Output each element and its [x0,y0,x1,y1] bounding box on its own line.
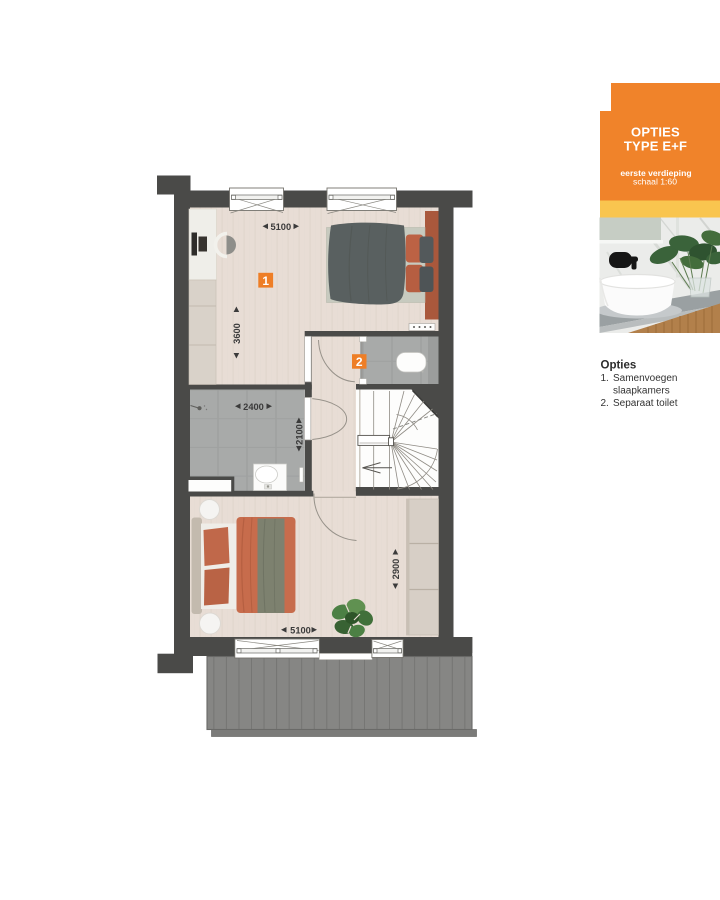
svg-text:Opties: Opties [601,360,637,372]
svg-text:slaapkamers: slaapkamers [613,386,670,397]
svg-text:OPTIES: OPTIES [631,125,680,140]
svg-text:2900: 2900 [391,559,401,580]
svg-text:Samenvoegen: Samenvoegen [613,373,678,384]
svg-text:Separaat toilet: Separaat toilet [613,398,678,409]
svg-text:2.: 2. [601,398,609,409]
svg-text:2: 2 [356,355,363,369]
svg-text:2100: 2100 [294,424,304,445]
svg-text:5100: 5100 [270,222,291,232]
svg-text:schaal 1:60: schaal 1:60 [633,176,677,186]
svg-text:2400: 2400 [243,402,264,412]
svg-text:5100: 5100 [290,625,311,635]
svg-text:TYPE E+F: TYPE E+F [624,139,687,154]
svg-text:1.: 1. [601,373,609,384]
svg-text:1: 1 [262,274,269,288]
svg-text:3600: 3600 [232,323,242,344]
